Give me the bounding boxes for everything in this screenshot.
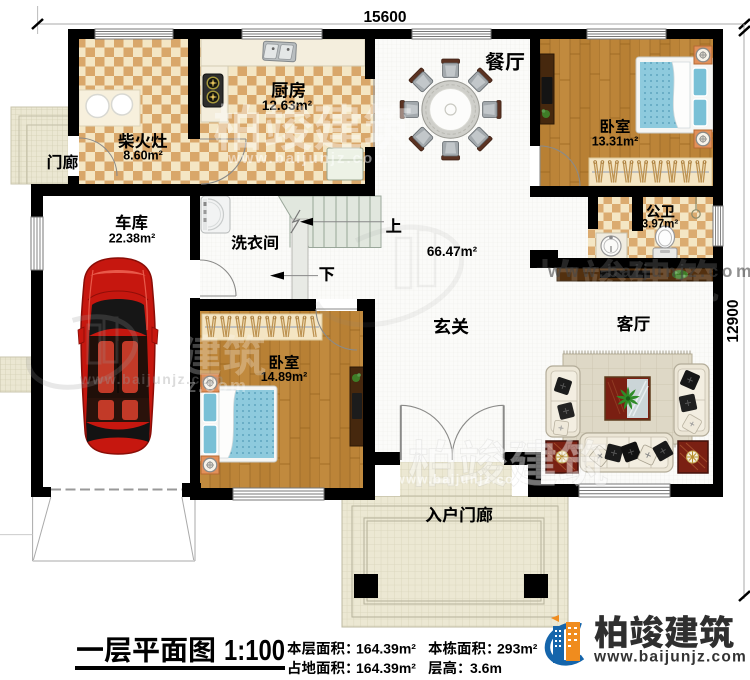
svg-text:22.38m²: 22.38m² — [109, 232, 156, 246]
svg-text:293m²: 293m² — [497, 641, 538, 657]
svg-text:1:100: 1:100 — [224, 635, 285, 667]
svg-text:8.60m²: 8.60m² — [123, 149, 163, 163]
svg-text:3.97m²: 3.97m² — [642, 219, 679, 231]
svg-text:15600: 15600 — [363, 9, 406, 26]
svg-text:164.39m²: 164.39m² — [356, 660, 416, 676]
svg-text:13.31m²: 13.31m² — [592, 135, 639, 149]
svg-text:www.baijunjz.com: www.baijunjz.com — [593, 649, 747, 666]
svg-text:www.baijunjz.com: www.baijunjz.com — [227, 150, 389, 167]
svg-text:3.6m: 3.6m — [470, 660, 502, 676]
svg-text:14.89m²: 14.89m² — [261, 370, 308, 384]
svg-text:www.baijunjz.com: www.baijunjz.com — [547, 261, 750, 281]
svg-text:www.baijunjz.com: www.baijunjz.com — [394, 473, 527, 487]
svg-text:12900: 12900 — [725, 299, 742, 342]
svg-text:jz.com: jz.com — [179, 376, 248, 396]
svg-text:164.39m²: 164.39m² — [356, 641, 416, 657]
